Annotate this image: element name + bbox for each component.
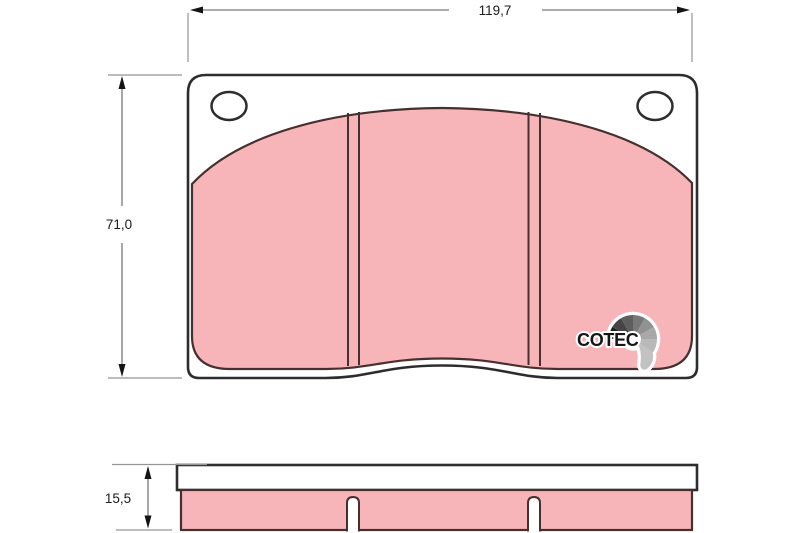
- drawing-canvas: 119,7 71,0: [0, 0, 800, 533]
- cotec-logo-text: COTEC: [577, 330, 639, 350]
- thickness-arrow-down-icon: [145, 516, 152, 529]
- profile-slot-2: [528, 497, 540, 532]
- height-dimension: 71,0: [106, 75, 182, 378]
- width-arrow-left-icon: [190, 7, 203, 14]
- friction-material-profile: [181, 490, 692, 530]
- width-arrow-right-icon: [677, 7, 690, 14]
- pad-front-view: COTEC: [188, 75, 697, 378]
- mounting-hole-left: [212, 92, 247, 120]
- backing-plate-profile: [177, 465, 697, 490]
- technical-drawing: 119,7 71,0: [0, 0, 800, 533]
- pad-side-view: [177, 465, 697, 532]
- width-dimension: 119,7: [188, 3, 692, 62]
- height-arrow-up-icon: [119, 76, 126, 89]
- width-dimension-label: 119,7: [479, 3, 512, 18]
- mounting-hole-right: [638, 92, 673, 120]
- height-dimension-label: 71,0: [106, 217, 132, 232]
- profile-slot-1: [347, 497, 359, 532]
- thickness-arrow-up-icon: [145, 466, 152, 479]
- thickness-dimension-label: 15,5: [105, 491, 131, 506]
- height-arrow-down-icon: [119, 364, 126, 377]
